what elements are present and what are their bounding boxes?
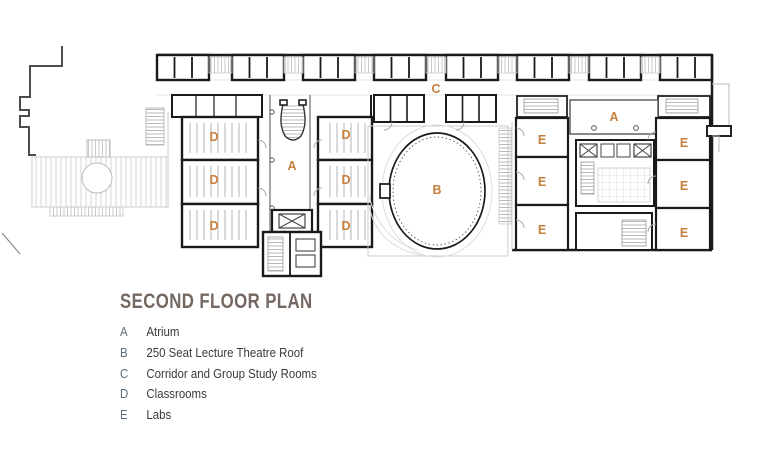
legend-item-lecture-theatre: B 250 Seat Lecture Theatre Roof (120, 343, 317, 364)
service-core (576, 140, 654, 206)
terrace-stair (87, 140, 110, 157)
page-title: SECOND FLOOR PLAN (120, 290, 313, 314)
legend-label: Corridor and Group Study Rooms (146, 364, 316, 385)
room-label-e: E (680, 179, 688, 193)
stair (524, 99, 558, 113)
room-label-d: D (341, 219, 350, 233)
stair (622, 220, 646, 246)
legend-key: B (120, 343, 146, 364)
legend-key: C (120, 364, 146, 385)
room-label-d: D (341, 173, 350, 187)
adjacent-building-outline (2, 46, 62, 254)
terrace-deck (32, 108, 168, 216)
legend-key: A (120, 322, 146, 343)
floor-plan-drawing: D D D D D D A B C A E E E E E E (0, 0, 764, 450)
room-label-e: E (680, 136, 688, 150)
legend-item-labs: E Labs (120, 405, 317, 426)
room-label-d: D (209, 173, 218, 187)
legend-label: Labs (146, 405, 171, 426)
group-study-room-band (157, 55, 712, 80)
room-label-e: E (538, 223, 546, 237)
legend-label: 250 Seat Lecture Theatre Roof (146, 343, 303, 364)
legend-label: Atrium (146, 322, 179, 343)
room-label-d: D (209, 219, 218, 233)
room-label-a: A (609, 110, 618, 124)
legend-item-corridor: C Corridor and Group Study Rooms (120, 364, 317, 385)
stair-connector (146, 108, 164, 145)
walkway-steps (50, 207, 123, 216)
room-label-e: E (538, 175, 546, 189)
room-label-e: E (538, 133, 546, 147)
legend-key: D (120, 384, 146, 405)
legend-item-classrooms: D Classrooms (120, 384, 317, 405)
bottom-stair-core (263, 232, 321, 276)
terrace-tree (82, 163, 112, 193)
atrium-stair (281, 104, 305, 140)
room-label-e: E (680, 226, 688, 240)
legend-key: E (120, 405, 146, 426)
room-label-d: D (209, 130, 218, 144)
legend-label: Classrooms (146, 384, 206, 405)
room-label-b: B (432, 183, 441, 197)
legend-item-atrium: A Atrium (120, 322, 317, 343)
room-label-d: D (341, 128, 350, 142)
stair (666, 99, 698, 113)
room-label-c: C (431, 82, 440, 96)
room-label-a: A (287, 159, 296, 173)
floor-plan-page: D D D D D D A B C A E E E E E E SECOND F… (0, 0, 764, 450)
lab-wing (512, 55, 731, 250)
legend: A Atrium B 250 Seat Lecture Theatre Roof… (120, 322, 317, 426)
